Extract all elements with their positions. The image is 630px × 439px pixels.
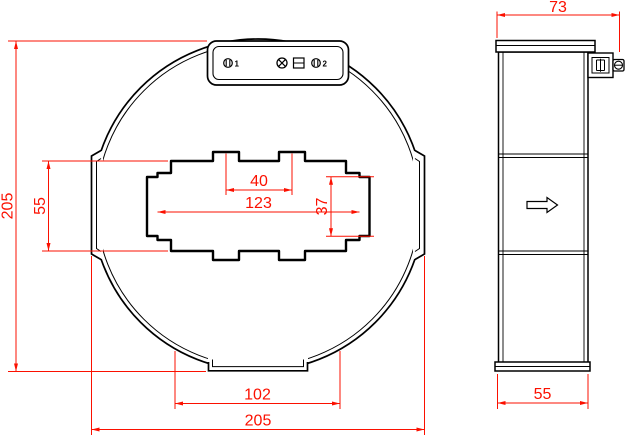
dim-label-overall-width: 205 xyxy=(245,413,272,430)
side-terminal-screw-icon xyxy=(588,53,624,78)
dim-label-depth-bottom: 55 xyxy=(534,386,552,403)
right-mount-pad xyxy=(413,151,426,260)
side-bottom-cap xyxy=(495,362,590,371)
arrowhead-icon xyxy=(175,402,183,406)
terminal-2-label: 2 xyxy=(323,60,328,69)
arrowhead-icon xyxy=(332,402,340,406)
arrowhead-icon xyxy=(580,401,588,405)
side-top-cap xyxy=(496,41,595,53)
dim-label-window-width: 123 xyxy=(245,195,272,212)
terminal-block: 1 2 xyxy=(208,41,349,85)
arrowhead-icon xyxy=(92,428,100,432)
dim-label-bump-spacing: 40 xyxy=(250,173,268,190)
arrowhead-icon xyxy=(47,161,51,169)
arrowhead-icon xyxy=(498,401,506,405)
side-view xyxy=(495,41,624,372)
technical-drawing-page: 1 2 xyxy=(0,0,630,439)
arrowhead-icon xyxy=(47,243,51,251)
terminal-1-label: 1 xyxy=(235,60,240,69)
dim-label-window-height: 55 xyxy=(32,197,49,215)
dimension-depth-bottom: 55 xyxy=(498,374,589,409)
dim-label-tab-height: 37 xyxy=(314,198,331,216)
dim-label-depth-top: 73 xyxy=(549,0,567,16)
arrowhead-icon xyxy=(14,41,18,49)
arrowhead-icon xyxy=(612,13,620,17)
arrowhead-icon xyxy=(14,364,18,372)
arrowhead-icon xyxy=(417,428,425,432)
left-mount-pad xyxy=(90,151,103,260)
bottom-foot-pad xyxy=(208,356,308,373)
dim-label-foot-width: 102 xyxy=(244,387,271,404)
dimension-overall-width: 205 xyxy=(92,256,425,435)
arrowhead-icon xyxy=(497,13,505,17)
ct-dimension-drawing: 1 2 xyxy=(0,0,630,439)
dim-label-overall-height: 205 xyxy=(0,193,17,220)
